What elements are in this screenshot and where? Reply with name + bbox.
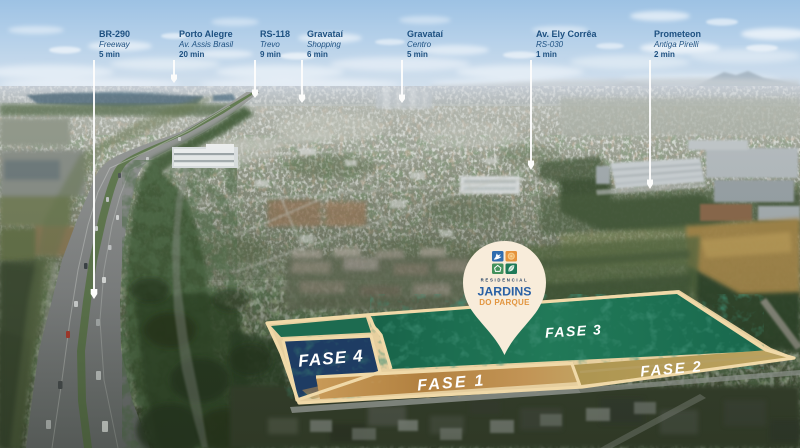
svg-text:Prometeon: Prometeon — [654, 29, 701, 39]
svg-text:20 min: 20 min — [179, 50, 204, 59]
svg-text:RS-118: RS-118 — [260, 29, 290, 39]
svg-text:BR-290: BR-290 — [99, 29, 130, 39]
svg-text:Gravataí: Gravataí — [307, 29, 344, 39]
svg-text:RESIDENCIAL: RESIDENCIAL — [481, 278, 529, 283]
svg-text:Centro: Centro — [407, 40, 432, 49]
svg-text:DO PARQUE: DO PARQUE — [479, 298, 530, 307]
svg-text:9 min: 9 min — [260, 50, 281, 59]
svg-text:5 min: 5 min — [407, 50, 428, 59]
svg-text:Av. Assis Brasil: Av. Assis Brasil — [178, 40, 233, 49]
svg-text:RS-030: RS-030 — [536, 40, 564, 49]
svg-text:JARDINS: JARDINS — [478, 285, 532, 299]
svg-text:Antiga Pirelli: Antiga Pirelli — [653, 40, 699, 49]
svg-text:2 min: 2 min — [654, 50, 675, 59]
svg-text:5 min: 5 min — [99, 50, 120, 59]
svg-text:Gravataí: Gravataí — [407, 29, 444, 39]
svg-text:6 min: 6 min — [307, 50, 328, 59]
svg-text:Freeway: Freeway — [99, 40, 131, 49]
svg-text:Av. Ely Corrêa: Av. Ely Corrêa — [536, 29, 598, 39]
svg-text:Trevo: Trevo — [260, 40, 280, 49]
svg-text:1 min: 1 min — [536, 50, 557, 59]
svg-text:Shopping: Shopping — [307, 40, 341, 49]
svg-text:Porto Alegre: Porto Alegre — [179, 29, 233, 39]
